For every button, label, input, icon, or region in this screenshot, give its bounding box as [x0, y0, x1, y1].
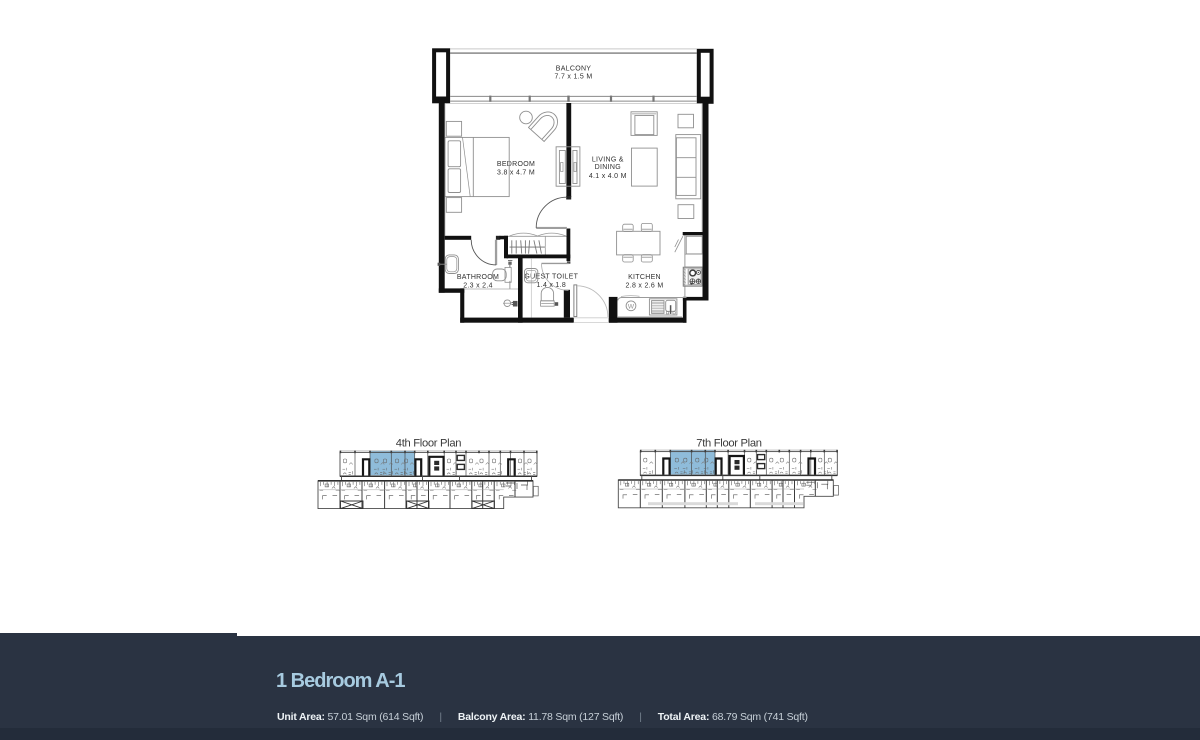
svg-text:LIVING &: LIVING & [592, 157, 624, 164]
svg-text:2.3 x 2.4: 2.3 x 2.4 [463, 283, 493, 290]
svg-text:BEDROOM: BEDROOM [497, 161, 535, 168]
svg-text:GUEST TOILET: GUEST TOILET [524, 274, 578, 281]
svg-text:2.8 x 2.6 M: 2.8 x 2.6 M [626, 282, 664, 289]
svg-text:4th Floor Plan: 4th Floor Plan [396, 438, 462, 450]
svg-text:DINING: DINING [595, 164, 621, 171]
svg-text:4.1 x 4.0 M: 4.1 x 4.0 M [589, 173, 627, 180]
svg-text:7th Floor Plan: 7th Floor Plan [696, 438, 762, 450]
svg-text:KITCHEN: KITCHEN [628, 274, 661, 281]
svg-text:1.4 x 1.8: 1.4 x 1.8 [537, 282, 567, 289]
svg-text:7.7 x 1.5 M: 7.7 x 1.5 M [555, 74, 593, 81]
svg-text:W: W [628, 303, 635, 310]
svg-text:3.8 x 4.7 M: 3.8 x 4.7 M [497, 169, 535, 176]
svg-text:BALCONY: BALCONY [556, 65, 592, 72]
